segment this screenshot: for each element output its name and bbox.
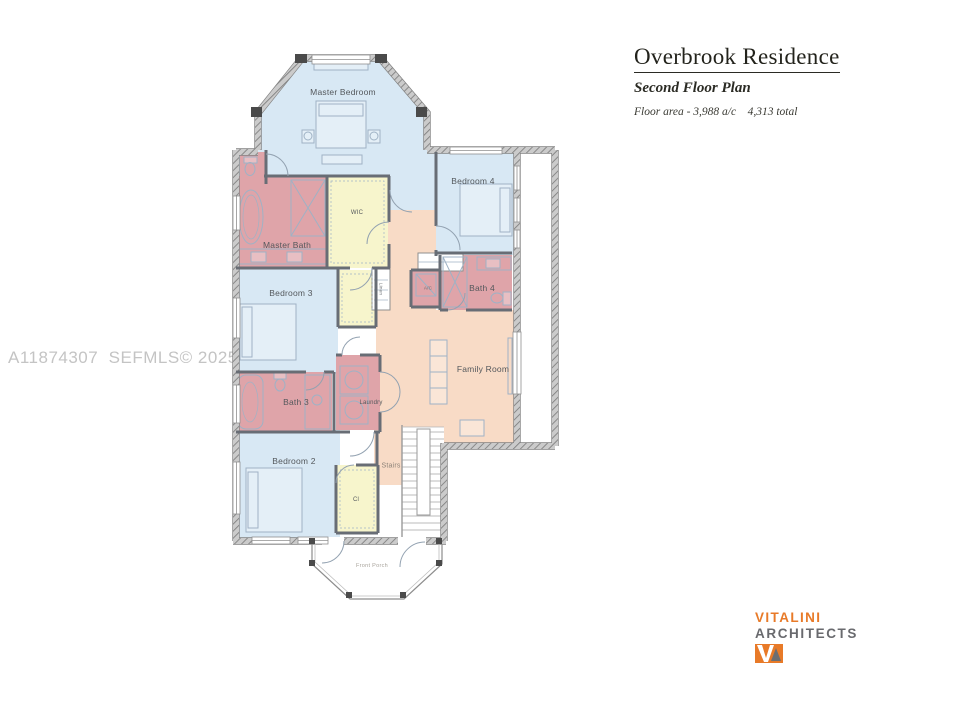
stair-top-strip bbox=[374, 415, 444, 427]
room-label-master-bath: Master Bath bbox=[263, 240, 311, 250]
room-label-cl: Cl bbox=[353, 497, 359, 503]
room-label-bedroom-4: Bedroom 4 bbox=[451, 176, 494, 186]
room-label-family-room: Family Room bbox=[457, 364, 509, 374]
room-wic bbox=[327, 176, 388, 268]
room-closet-b3 bbox=[338, 270, 376, 327]
room-label-ac: A/C bbox=[424, 286, 432, 291]
room-label-front-porch: Front Porch bbox=[356, 563, 388, 569]
room-label-bath-3: Bath 3 bbox=[283, 397, 309, 407]
stairs-drawing bbox=[402, 425, 444, 537]
room-label-bath-4: Bath 4 bbox=[469, 283, 495, 293]
floorplan-page: Master Bedroom Bedroom 4 WIC Master Bath… bbox=[0, 0, 960, 720]
room-label-wic: WIC bbox=[351, 210, 363, 216]
room-label-linen: Linen bbox=[379, 283, 384, 295]
floor-plan-drawing bbox=[0, 0, 960, 720]
room-label-laundry: Laundry bbox=[359, 400, 382, 406]
room-label-stairs: Stairs bbox=[381, 463, 400, 470]
room-label-bedroom-2: Bedroom 2 bbox=[272, 456, 315, 466]
room-label-bedroom-3: Bedroom 3 bbox=[269, 288, 312, 298]
room-label-master-bedroom: Master Bedroom bbox=[310, 87, 376, 97]
